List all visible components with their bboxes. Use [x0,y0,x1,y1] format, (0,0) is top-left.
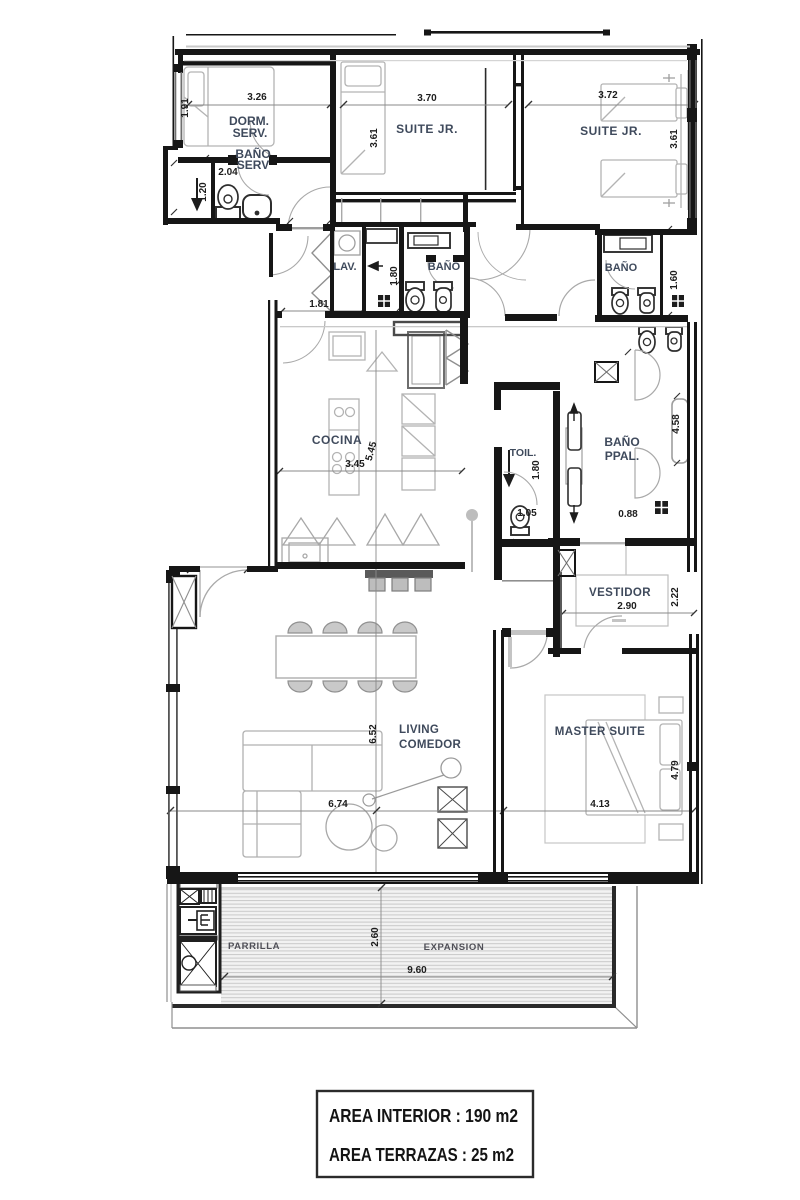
svg-text:EXPANSION: EXPANSION [424,942,485,953]
svg-text:1.05: 1.05 [517,508,537,519]
svg-text:4.13: 4.13 [590,799,610,810]
svg-text:1.80: 1.80 [389,266,400,286]
svg-text:6.52: 6.52 [368,724,379,744]
svg-text:6.74: 6.74 [328,799,348,810]
svg-text:1.80: 1.80 [531,460,542,480]
svg-text:3.61: 3.61 [369,128,380,148]
svg-text:TOIL.: TOIL. [510,447,537,459]
svg-text:SUITE JR.: SUITE JR. [580,124,642,138]
svg-text:3.61: 3.61 [669,129,680,149]
svg-text:AREA INTERIOR : 190 m2: AREA INTERIOR : 190 m2 [329,1106,518,1126]
svg-text:BAÑO: BAÑO [605,261,638,274]
svg-text:9.60: 9.60 [407,965,427,976]
svg-text:AREA TERRAZAS : 25 m2: AREA TERRAZAS : 25 m2 [329,1145,514,1165]
svg-text:COCINA: COCINA [312,433,362,447]
svg-text:LIVING: LIVING [399,724,439,736]
svg-text:4.58: 4.58 [671,414,682,434]
svg-text:1.60: 1.60 [669,270,680,290]
svg-text:2.22: 2.22 [670,587,681,607]
svg-text:4.79: 4.79 [670,760,681,780]
svg-text:3.72: 3.72 [598,90,618,101]
svg-text:2.60: 2.60 [370,927,381,947]
svg-text:VESTIDOR: VESTIDOR [589,587,651,599]
svg-text:COMEDOR: COMEDOR [399,739,462,751]
svg-text:SERV.: SERV. [233,126,268,140]
svg-text:1.81: 1.81 [309,299,329,310]
svg-text:SUITE JR.: SUITE JR. [396,122,458,136]
svg-text:3.26: 3.26 [247,92,267,103]
svg-text:SERV: SERV [237,158,269,172]
svg-text:BAÑO: BAÑO [428,260,461,273]
svg-text:2.04: 2.04 [218,167,238,178]
svg-text:2.90: 2.90 [617,601,637,612]
svg-text:PPAL.: PPAL. [605,449,639,463]
svg-text:1.91: 1.91 [180,98,191,118]
svg-text:0.88: 0.88 [618,509,638,520]
svg-text:3.45: 3.45 [345,459,365,470]
svg-text:1.20: 1.20 [198,182,209,202]
svg-text:LAV.: LAV. [333,261,356,273]
svg-text:PARRILLA: PARRILLA [228,941,280,952]
svg-text:BAÑO: BAÑO [604,434,639,449]
svg-text:MASTER SUITE: MASTER SUITE [555,726,645,738]
svg-text:3.70: 3.70 [417,93,437,104]
